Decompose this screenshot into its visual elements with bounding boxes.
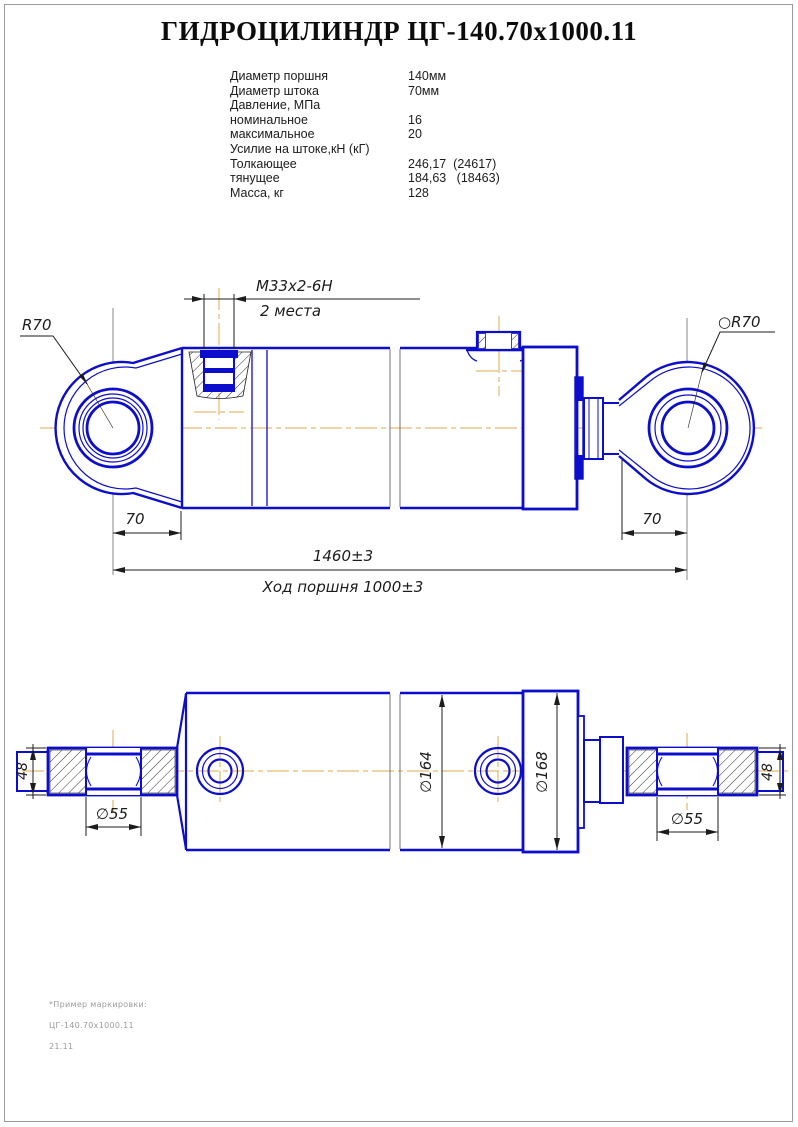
marking-note-line1: *Пример маркировки: [49,994,147,1015]
technical-drawing-canvas: М33х2-6Н 2 места R70 ○R70 70 70 1460±3 Х… [0,0,798,1127]
right-radius-label: ○R70 [718,313,761,331]
left-eye [56,348,182,508]
left-radius-label: R70 [22,316,52,334]
thread-label: М33х2-6Н [256,277,333,295]
left-port [189,350,251,399]
thread-note: 2 места [260,302,321,320]
right-eye [619,362,754,494]
right-pivot-width: 70 [642,510,661,528]
rod-top-view [584,737,623,803]
marking-note: *Пример маркировки: ЦГ-140.70х1000.11 21… [49,994,147,1057]
bore-left: ∅55 [96,805,128,823]
top-view: 48 ∅55 ∅164 ∅168 48 ∅55 [15,691,788,852]
head-diameter: ∅168 [533,751,551,793]
marking-note-line2: ЦГ-140.70х1000.11 [49,1015,147,1036]
eye-width-right: 48 [760,763,776,781]
total-length-dim: 1460±3 [313,547,373,565]
left-pivot-width: 70 [125,510,144,528]
piston-rod [584,398,621,459]
side-view: М33х2-6Н 2 места R70 ○R70 70 70 1460±3 Х… [20,277,775,596]
piston-stroke-dim: Ход поршня 1000±3 [262,578,424,596]
marking-note-line3: 21.11 [49,1036,147,1057]
tube-diameter: ∅164 [417,751,435,793]
bore-right: ∅55 [671,810,703,828]
eye-width-left: 48 [15,762,31,780]
drawing-sheet: ГИДРОЦИЛИНДР ЦГ-140.70х1000.11 Диаметр п… [0,0,798,1127]
cylinder-head [523,347,583,509]
